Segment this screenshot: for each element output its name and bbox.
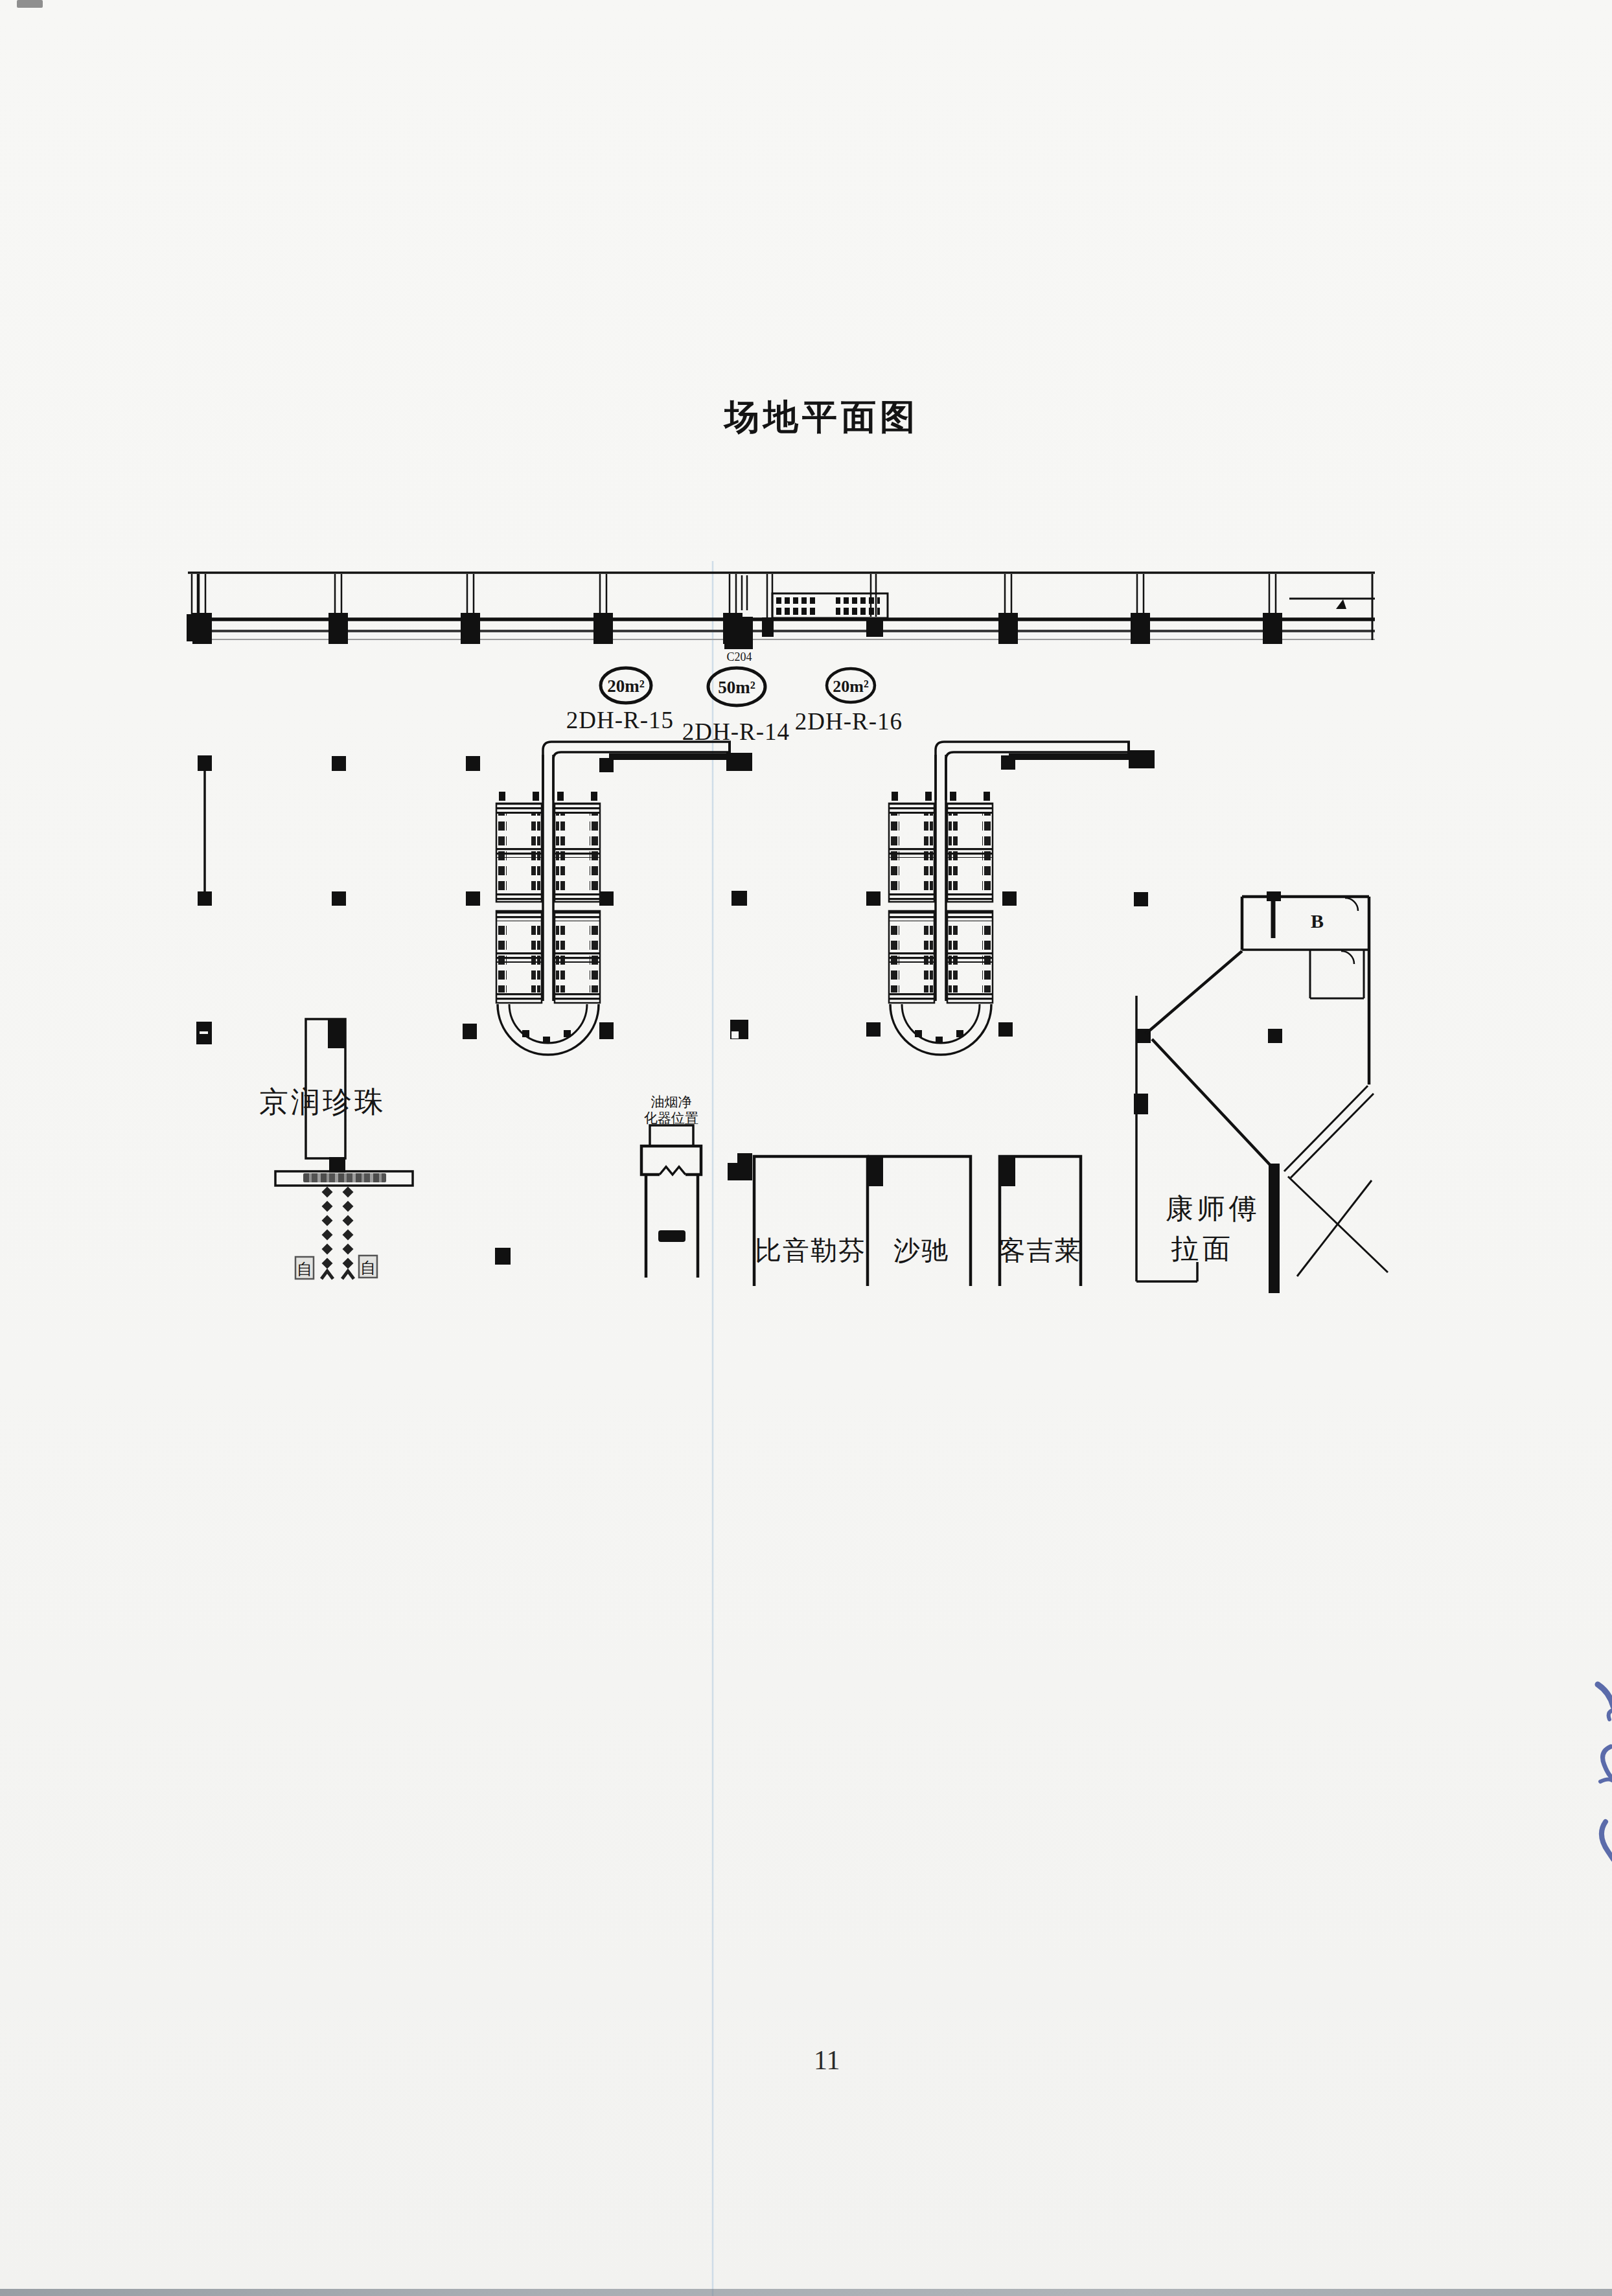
door-c204: C204 bbox=[724, 617, 753, 663]
thick-wall bbox=[1269, 1164, 1280, 1293]
unit-area-label: 20m² bbox=[607, 676, 645, 696]
store-pearl-stand: 京润珍珠 bbox=[259, 1019, 413, 1186]
duct-middle-end-block bbox=[1129, 750, 1155, 768]
store-masterkong-line2: 拉面 bbox=[1171, 1234, 1234, 1264]
unit-labels: 20m² 2DH-R-15 50m² 2DH-R-14 20m² 2DH-R-1… bbox=[566, 668, 903, 745]
storefront-boxes bbox=[754, 1156, 1081, 1286]
store-pearl-label: 京润珍珠 bbox=[259, 1086, 386, 1118]
page-number: 11 bbox=[814, 2045, 840, 2076]
top-facade-band bbox=[188, 573, 1375, 640]
escalator-glyph-boxes: 自 自 bbox=[295, 1256, 377, 1279]
room-label-b: B bbox=[1311, 910, 1324, 932]
note-line2: 化器位置 bbox=[644, 1110, 698, 1126]
storefront-column bbox=[1001, 1158, 1015, 1186]
scan-bottom-edge bbox=[0, 2289, 1612, 2296]
floor-plan-drawing: C204 20m² 2DH-R-15 50m² 2DH-R-14 20m² 2D… bbox=[0, 0, 1612, 2296]
escalator-glyph: 自 bbox=[360, 1259, 376, 1276]
unit-area-label: 20m² bbox=[833, 677, 869, 696]
duct-middle bbox=[936, 742, 1130, 800]
dotted-path bbox=[321, 1187, 354, 1279]
scanned-document-page: { "page": { "title": "场地平面图", "page_numb… bbox=[0, 0, 1612, 2296]
unit-area-label: 50m² bbox=[718, 678, 755, 697]
store-kejilai-label: 客吉莱 bbox=[999, 1235, 1083, 1265]
door-c204-label: C204 bbox=[726, 650, 752, 663]
scan-corner-artifact bbox=[17, 0, 43, 8]
escalator-glyph: 自 bbox=[297, 1261, 312, 1278]
store-satchi-label: 沙驰 bbox=[893, 1235, 949, 1265]
illegible-counter-label bbox=[303, 1173, 386, 1182]
duct-left-end-block bbox=[726, 753, 752, 771]
door-block bbox=[1267, 891, 1281, 901]
duct-left bbox=[543, 742, 731, 800]
store-masterkong-line1: 康师傅 bbox=[1166, 1193, 1261, 1224]
structural-columns bbox=[196, 755, 1282, 1265]
storefront-column bbox=[869, 1158, 883, 1186]
purifier-kiosk: 油烟净 化器位置 bbox=[641, 1094, 701, 1278]
store-biemlofen-label: 比音勒芬 bbox=[755, 1235, 866, 1265]
rack-comb-middle bbox=[889, 755, 993, 1055]
rack-comb-left bbox=[496, 755, 600, 1055]
unit-id-label: 2DH-R-15 bbox=[566, 707, 674, 733]
note-line1: 油烟净 bbox=[651, 1094, 692, 1110]
column-notch bbox=[728, 1153, 737, 1163]
unit-id-label: 2DH-R-16 bbox=[795, 708, 903, 735]
handwriting-ink-marks bbox=[1598, 1684, 1612, 1859]
